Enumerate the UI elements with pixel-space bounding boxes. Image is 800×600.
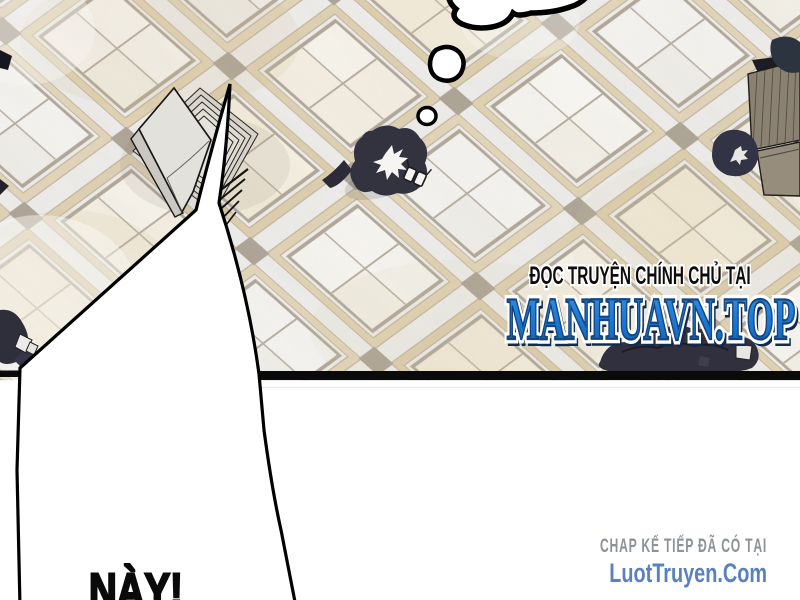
svg-text:LuotTruyen.Com: LuotTruyen.Com xyxy=(609,559,767,589)
svg-text:CHAP KẾ TIẾP ĐÃ CÓ TẠI: CHAP KẾ TIẾP ĐÃ CÓ TẠI xyxy=(600,533,767,557)
svg-text:MANHUAVN.TOP: MANHUAVN.TOP xyxy=(507,285,796,352)
svg-text:NÀY!: NÀY! xyxy=(89,563,183,600)
